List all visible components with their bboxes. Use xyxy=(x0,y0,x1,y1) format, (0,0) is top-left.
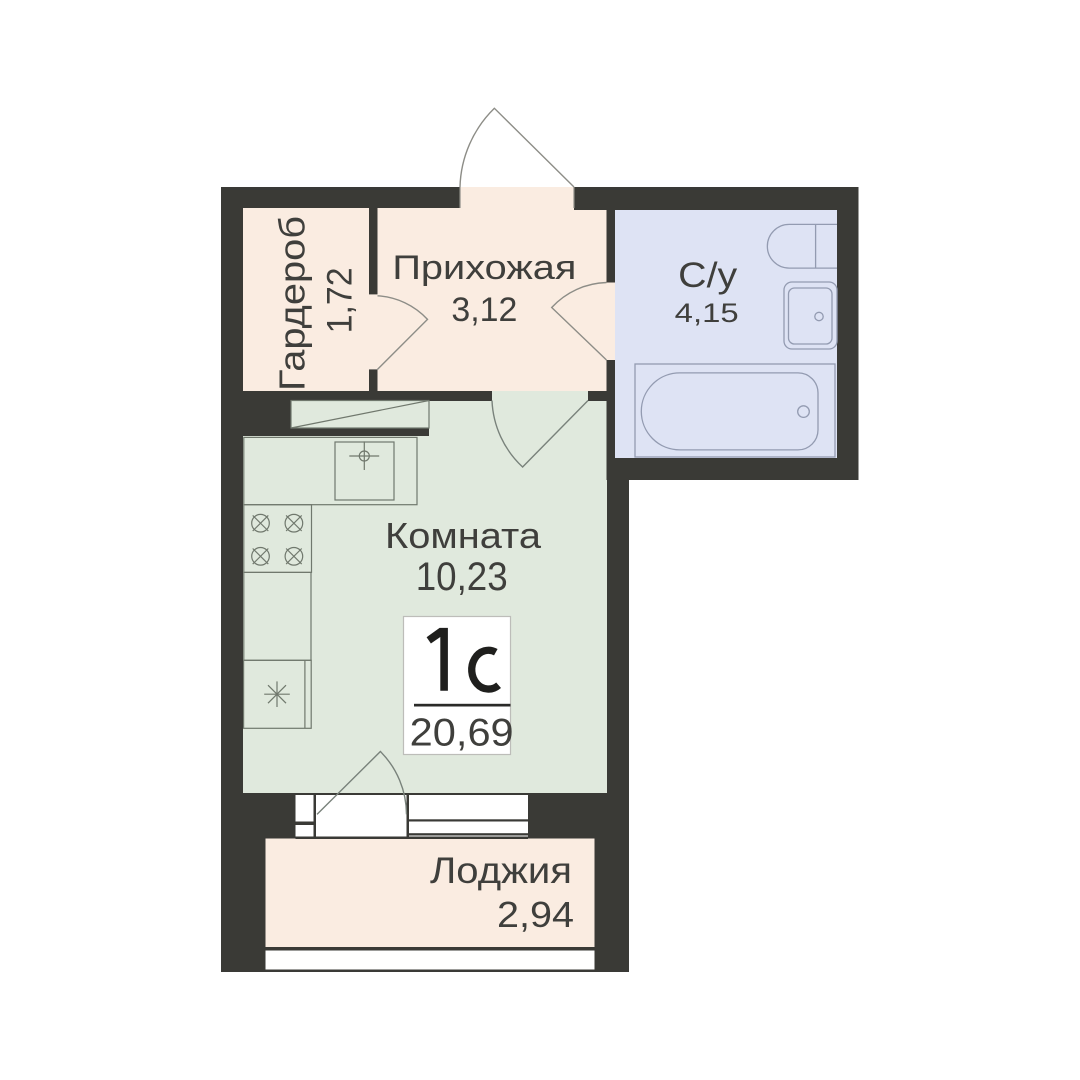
svg-text:10,23: 10,23 xyxy=(416,555,508,599)
svg-text:3,12: 3,12 xyxy=(451,291,517,329)
svg-text:1,72: 1,72 xyxy=(321,267,360,333)
svg-text:Лоджия: Лоджия xyxy=(430,850,572,891)
svg-text:Комната: Комната xyxy=(385,515,542,556)
svg-text:С/у: С/у xyxy=(678,256,738,295)
svg-text:2,94: 2,94 xyxy=(497,894,574,935)
svg-text:Гардероб: Гардероб xyxy=(272,216,313,391)
svg-text:4,15: 4,15 xyxy=(675,298,739,328)
svg-text:20,69: 20,69 xyxy=(410,712,514,755)
svg-text:Прихожая: Прихожая xyxy=(392,249,576,287)
